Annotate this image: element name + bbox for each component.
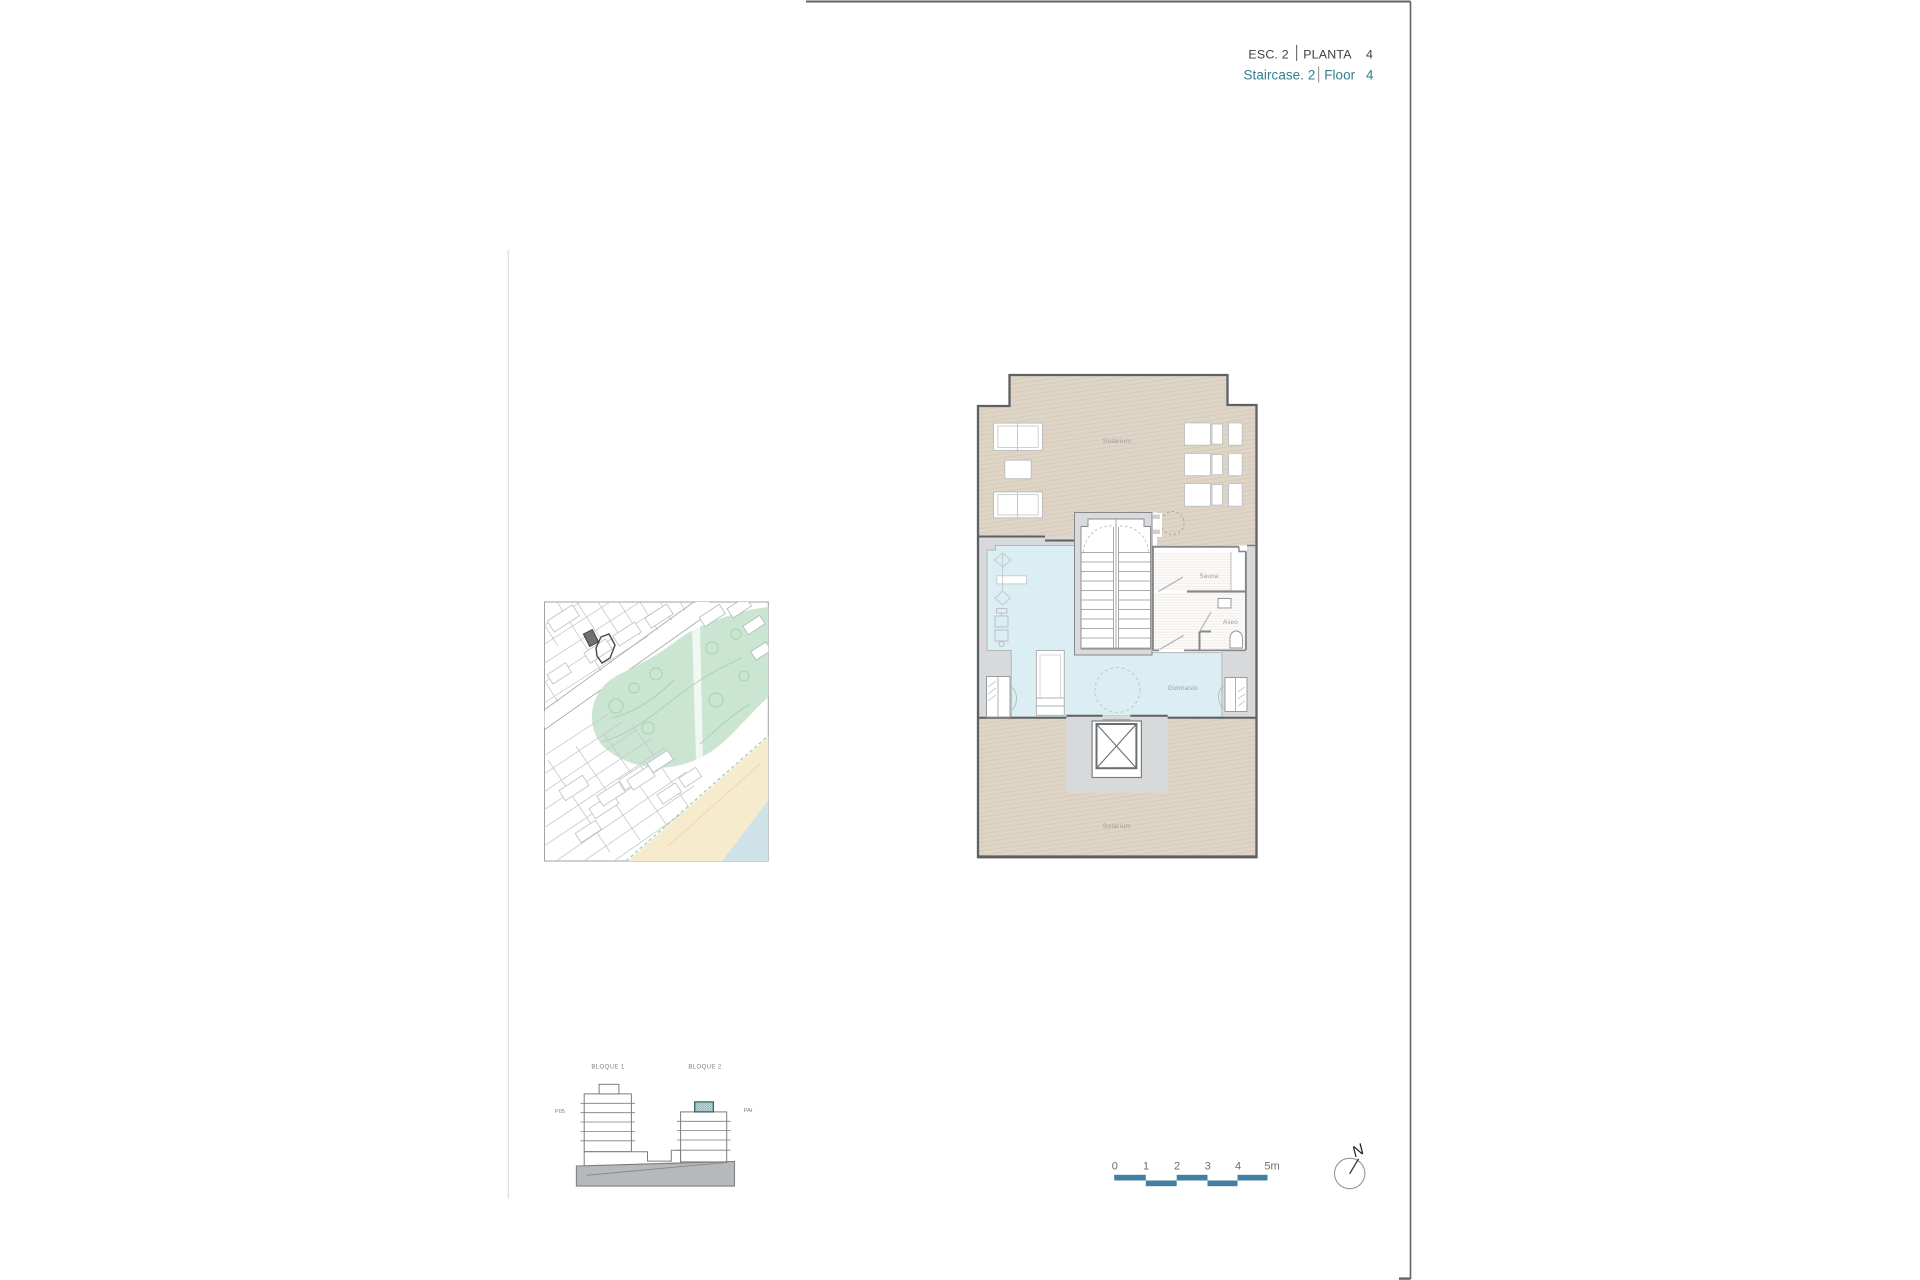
svg-text:Solarium: Solarium [1103,823,1132,830]
svg-text:4: 4 [1235,1161,1241,1173]
svg-text:Solarium: Solarium [1103,438,1132,445]
svg-text:3: 3 [1205,1161,1211,1173]
svg-text:PLANTA: PLANTA [1303,48,1352,62]
svg-text:4: 4 [1366,67,1374,82]
svg-text:PAt: PAt [744,1108,753,1114]
svg-text:1: 1 [1143,1161,1149,1173]
svg-text:Gimnasio: Gimnasio [1168,685,1198,692]
svg-text:ESC. 2: ESC. 2 [1248,48,1288,62]
svg-text:P05: P05 [555,1109,565,1115]
svg-text:2: 2 [1174,1161,1180,1173]
svg-text:BLOQUE 2: BLOQUE 2 [688,1065,721,1071]
svg-text:Staircase. 2: Staircase. 2 [1244,67,1316,82]
svg-text:Sauna: Sauna [1200,573,1219,580]
svg-text:Aseo: Aseo [1223,619,1238,626]
svg-text:5m: 5m [1264,1161,1279,1173]
svg-text:4: 4 [1366,48,1373,62]
svg-text:0: 0 [1112,1161,1118,1173]
svg-text:BLOQUE 1: BLOQUE 1 [591,1065,624,1071]
svg-text:Floor: Floor [1324,67,1355,82]
